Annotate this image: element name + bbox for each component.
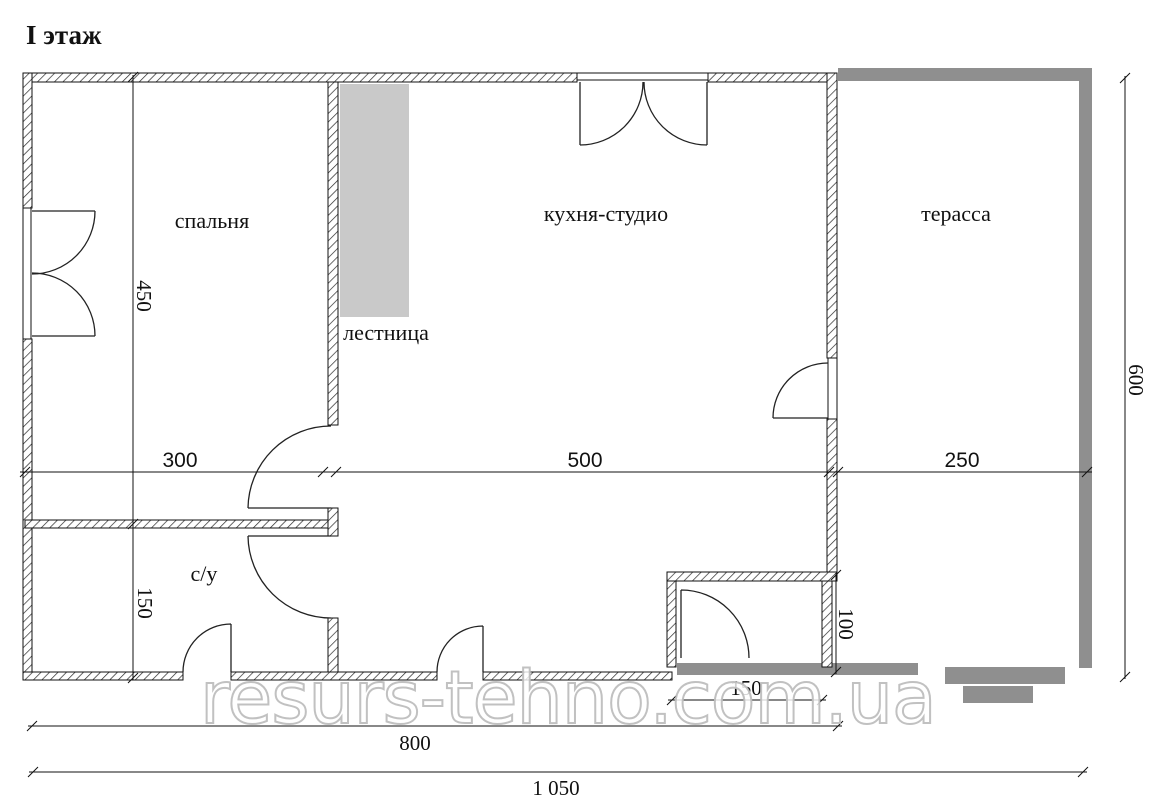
wall-bottom-3	[483, 672, 672, 680]
french-door-top-left-leaf	[580, 82, 643, 145]
bathroom-south-door	[183, 624, 231, 672]
wall-top-left	[25, 73, 577, 82]
porch-strip	[677, 663, 918, 675]
dim-label-500: 500	[567, 449, 602, 472]
opening-top-french-door	[577, 73, 708, 80]
room-label-bedroom: спальня	[175, 208, 249, 233]
dim-label-600: 600	[1124, 364, 1148, 396]
opening-terrace-door	[828, 358, 837, 419]
french-door-top-right-leaf	[644, 82, 707, 145]
room-label-bathroom: с/у	[191, 561, 218, 586]
stairs-block	[340, 84, 409, 317]
wall-interior-vertical-mid	[328, 508, 338, 536]
door-openings	[23, 73, 837, 419]
doors	[32, 82, 828, 672]
dim-label-150-bathroom: 150	[133, 587, 157, 619]
floor-plan: спальня кухня-студио терасса лестница с/…	[0, 0, 1159, 804]
wall-entry-top	[667, 572, 837, 581]
dim-label-150-entry: 150	[730, 676, 762, 700]
kitchen-south-door	[437, 626, 483, 672]
bathroom-east-door	[248, 536, 331, 618]
bedroom-door	[248, 426, 331, 508]
terrace-wall-top	[838, 68, 1092, 81]
wall-left-upper	[23, 73, 32, 208]
step-1	[945, 667, 1065, 684]
dim-label-100: 100	[834, 608, 858, 640]
terrace-wall-right	[1079, 80, 1092, 668]
room-label-kitchen: кухня-студио	[544, 201, 668, 226]
dim-label-250: 250	[944, 449, 979, 472]
wall-right-mid	[827, 419, 837, 581]
wall-entry-right	[822, 581, 832, 667]
dim-label-300: 300	[162, 449, 197, 472]
wall-interior-vertical-upper	[328, 82, 338, 425]
wall-entry-left	[667, 581, 676, 667]
entry-door	[681, 590, 749, 658]
french-door-left-lower-leaf	[32, 273, 95, 336]
wall-interior-horizontal	[25, 520, 328, 528]
room-label-terrace: терасса	[921, 201, 991, 226]
page-title: I этаж	[26, 20, 102, 51]
step-2	[963, 686, 1033, 703]
wall-left-lower	[23, 339, 32, 680]
dim-label-450: 450	[132, 280, 156, 312]
dim-label-800: 800	[399, 731, 431, 755]
wall-top-right	[708, 73, 837, 82]
wall-bottom-1	[23, 672, 183, 680]
dim-label-1050: 1 050	[532, 776, 579, 800]
french-door-left-upper-leaf	[32, 211, 95, 274]
opening-left-french-door	[23, 208, 31, 339]
floor-plan-drawing: спальня кухня-студио терасса лестница с/…	[0, 0, 1159, 804]
wall-interior-vertical-lower	[328, 618, 338, 672]
wall-right-upper	[827, 73, 837, 358]
kitchen-terrace-door	[773, 363, 828, 418]
wall-bottom-2	[231, 672, 437, 680]
room-label-stairs: лестница	[343, 320, 429, 345]
